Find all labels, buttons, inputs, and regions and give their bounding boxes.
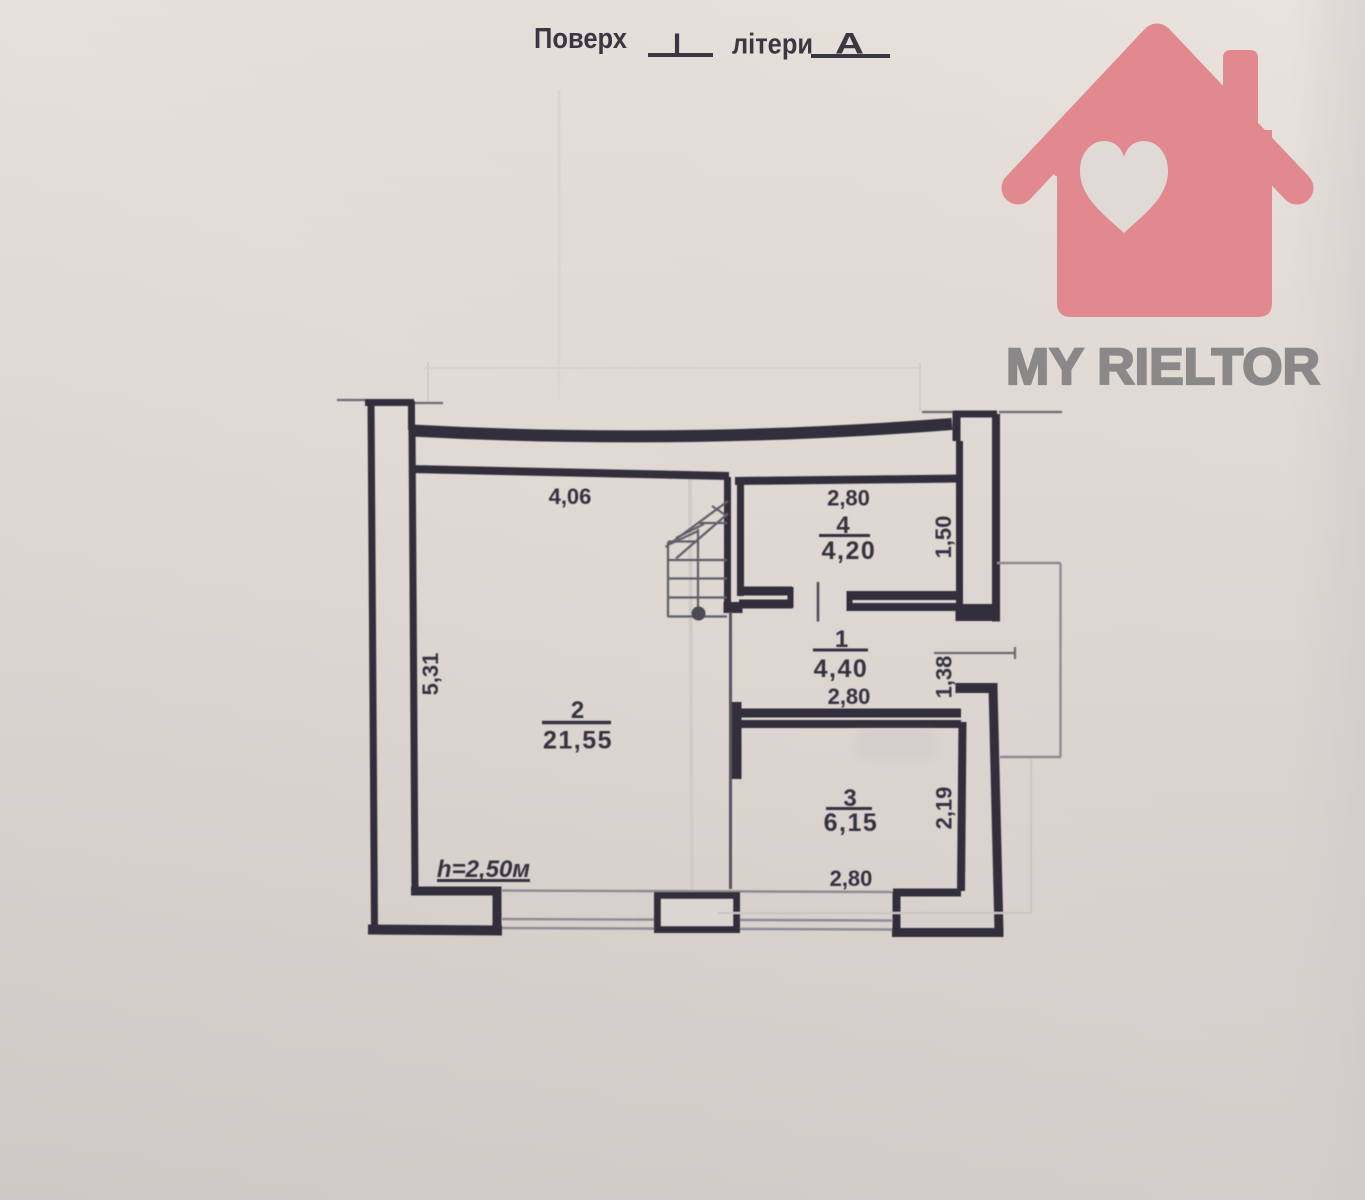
svg-text:6,15: 6,15 xyxy=(824,809,879,837)
svg-text:21,55: 21,55 xyxy=(543,727,613,755)
svg-text:2,19: 2,19 xyxy=(932,787,957,830)
svg-text:літери: літери xyxy=(732,29,813,61)
svg-text:4,06: 4,06 xyxy=(549,484,592,509)
svg-text:4,40: 4,40 xyxy=(814,655,869,683)
svg-text:5,31: 5,31 xyxy=(418,653,443,696)
svg-text:2,80: 2,80 xyxy=(830,866,873,891)
svg-text:4,20: 4,20 xyxy=(822,537,877,565)
svg-text:MY RIELTOR: MY RIELTOR xyxy=(1006,338,1320,395)
svg-text:2,80: 2,80 xyxy=(827,486,870,511)
svg-text:2: 2 xyxy=(571,697,584,724)
svg-text:2,80: 2,80 xyxy=(828,684,871,709)
svg-text:h=2,50м: h=2,50м xyxy=(437,856,530,883)
svg-text:1,38: 1,38 xyxy=(932,656,957,699)
svg-text:Поверх: Поверх xyxy=(534,23,627,55)
svg-text:1,50: 1,50 xyxy=(931,516,956,559)
